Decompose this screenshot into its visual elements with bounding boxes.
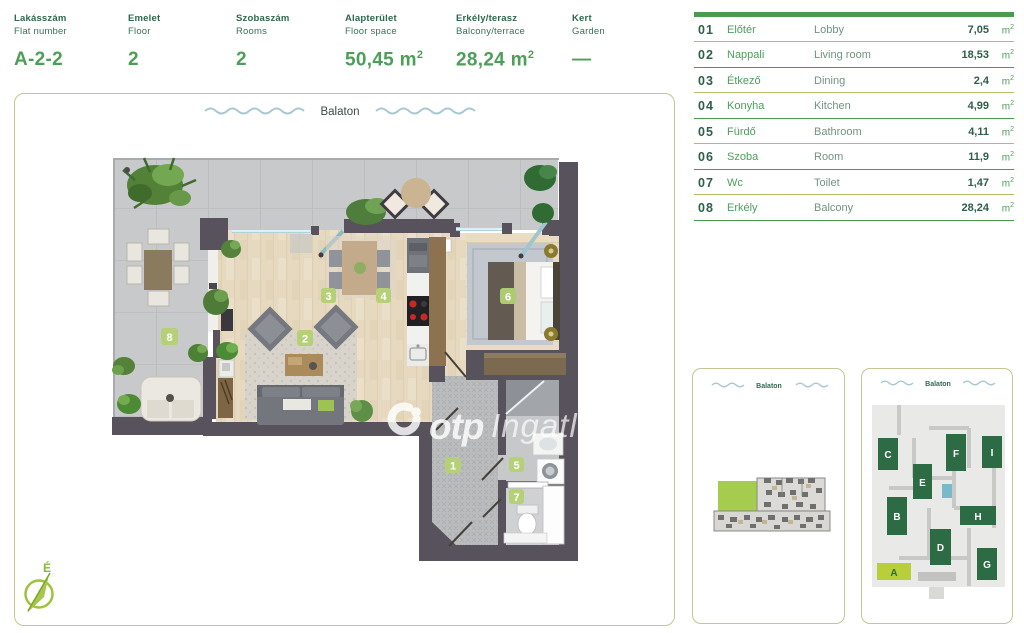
svg-text:H: H xyxy=(974,512,981,523)
svg-text:F: F xyxy=(953,449,959,460)
svg-text:2: 2 xyxy=(302,334,308,346)
svg-text:4: 4 xyxy=(380,291,387,303)
svg-text:Balaton: Balaton xyxy=(756,383,782,390)
svg-text:I: I xyxy=(991,448,994,459)
svg-text:É: É xyxy=(43,560,51,575)
svg-text:G: G xyxy=(983,560,991,571)
svg-text:Ingatlan: Ingatlan xyxy=(491,407,616,444)
svg-text:E: E xyxy=(919,478,926,489)
svg-text:7: 7 xyxy=(513,492,519,504)
svg-text:C: C xyxy=(884,450,891,461)
svg-text:3: 3 xyxy=(325,291,331,303)
svg-text:B: B xyxy=(893,512,900,523)
svg-text:5: 5 xyxy=(513,460,519,472)
svg-text:6: 6 xyxy=(505,292,511,304)
svg-text:8: 8 xyxy=(166,332,172,344)
svg-text:A: A xyxy=(890,568,897,579)
svg-text:otp: otp xyxy=(429,406,484,447)
svg-text:1: 1 xyxy=(450,461,456,473)
svg-text:Balaton: Balaton xyxy=(925,381,951,388)
svg-text:D: D xyxy=(937,543,944,554)
